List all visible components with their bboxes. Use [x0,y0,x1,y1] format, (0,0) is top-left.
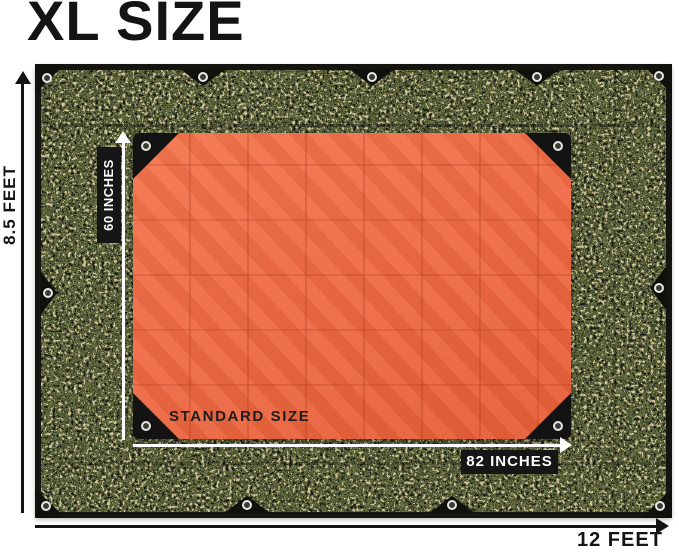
fabric-fold-line [613,70,616,512]
grommet-icon [41,501,51,511]
standard-size-label: STANDARD SIZE [169,408,310,425]
grommet-icon [654,71,664,81]
std-height-arrow [122,142,125,440]
grommet-icon [532,72,542,82]
std-width-label: 82 INCHES [461,450,558,474]
product-size-diagram: XL SIZE [0,0,679,553]
xl-width-label: 12 FEET [577,529,663,552]
grommet-icon [198,72,208,82]
page-title: XL SIZE [27,0,245,46]
grommet-icon [655,501,665,511]
grommet-icon [367,72,377,82]
grommet-icon [43,288,53,298]
grommet-icon [654,283,664,293]
grommet-icon [553,141,563,151]
grommet-icon [447,500,457,510]
arrowhead-right-icon [560,437,572,453]
arrowhead-up-icon [15,71,31,84]
grommet-icon [553,421,563,431]
fabric-fold-line [41,124,666,127]
corner-reinforcement [525,133,571,179]
xl-height-arrow [21,84,24,513]
fabric-fold-line [41,462,666,465]
arrowhead-up-icon [115,131,131,143]
std-height-label: 60 INCHES [97,147,121,243]
grommet-icon [42,73,52,83]
corner-reinforcement [133,133,179,179]
corner-reinforcement [525,393,571,439]
grommet-icon [141,421,151,431]
xl-width-arrow [35,525,656,528]
xl-height-label: 8.5 FEET [0,135,21,275]
grommet-icon [141,141,151,151]
grommet-icon [242,500,252,510]
std-width-arrow [133,444,561,447]
standard-orange-tarp [133,133,571,439]
